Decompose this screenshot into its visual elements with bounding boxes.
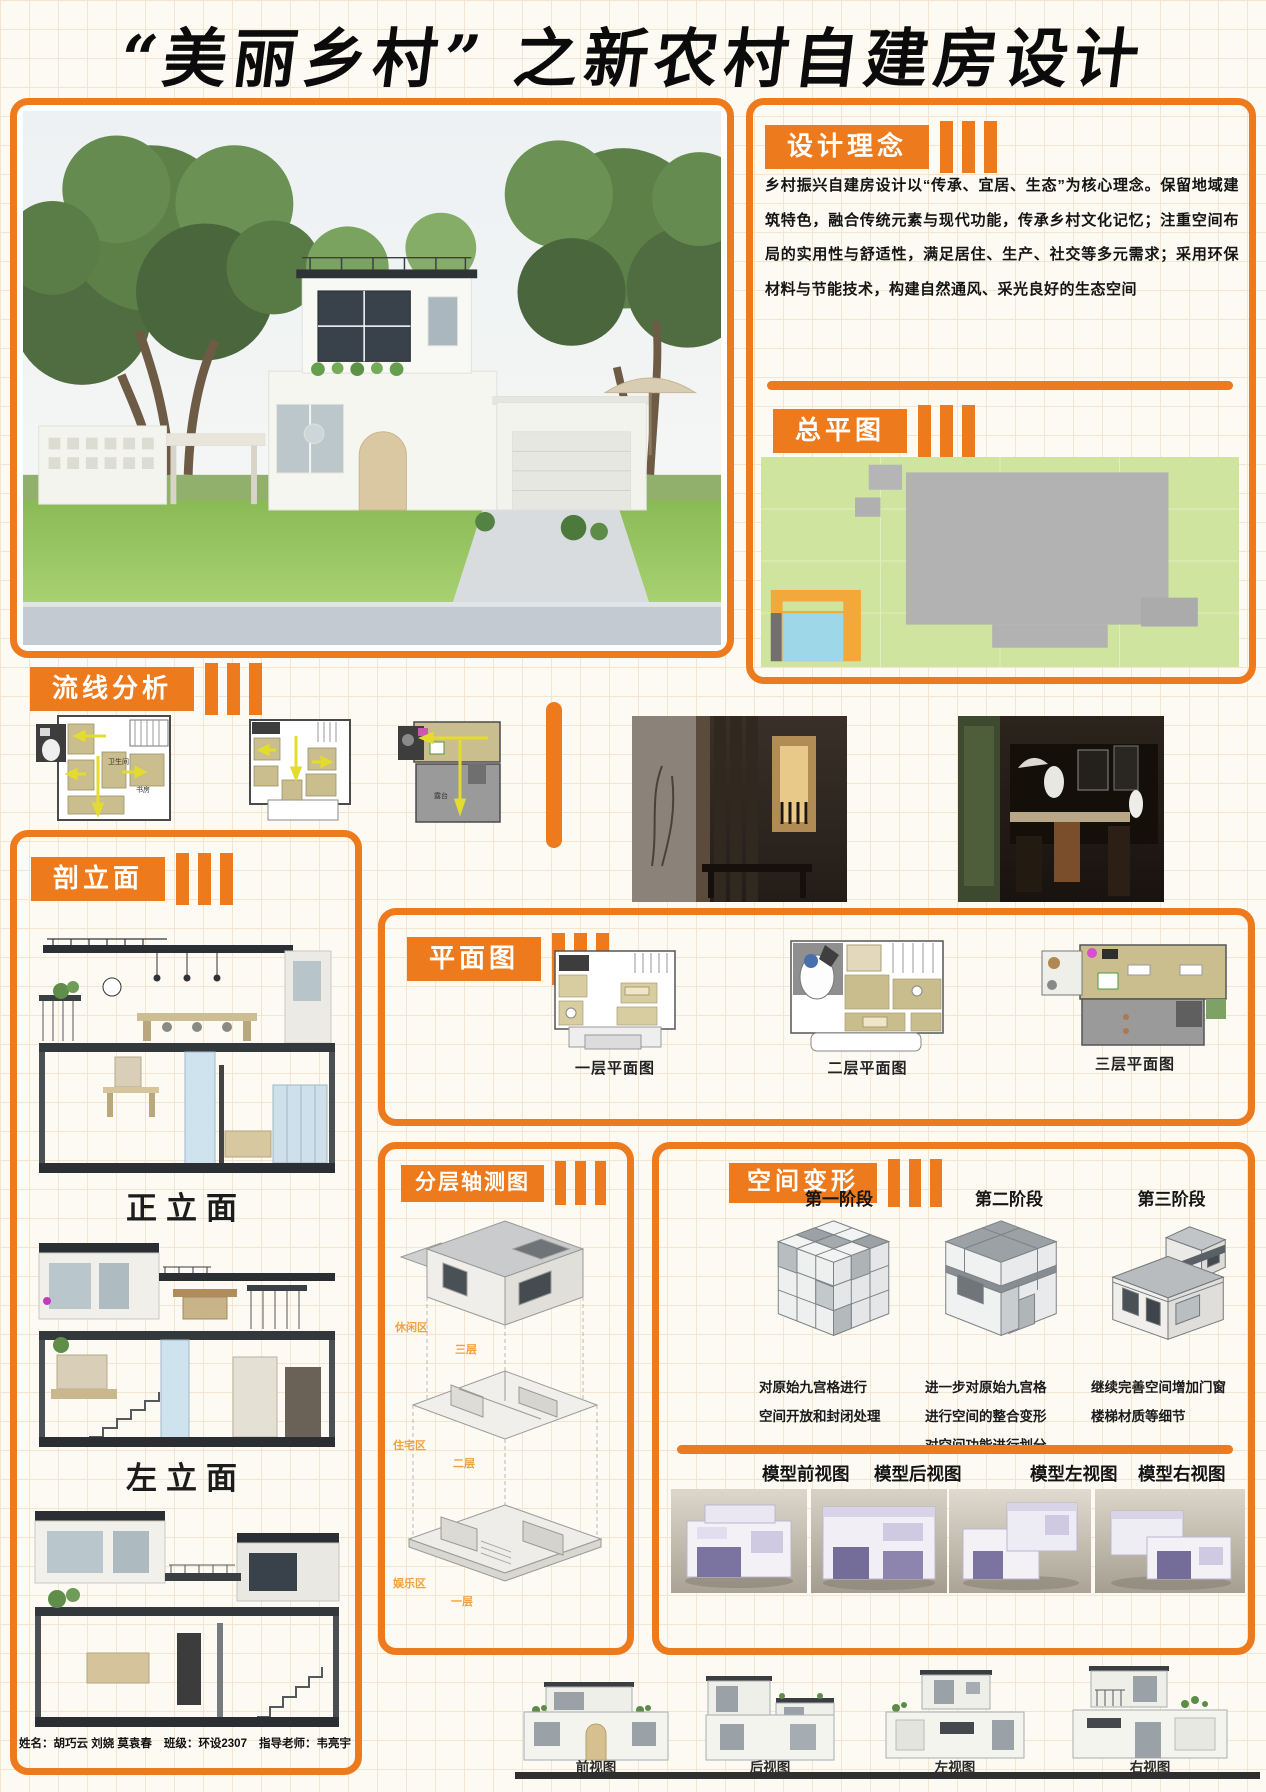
circulation-plan-2 bbox=[246, 718, 368, 824]
header-accent-bars bbox=[940, 121, 997, 173]
sections-header-title: 剖立面 bbox=[31, 857, 165, 901]
poster-board: “美丽乡村” 之新农村自建房设计 bbox=[0, 0, 1266, 1792]
bottom-elevation-right bbox=[1065, 1664, 1235, 1764]
concept-siteplan-panel: 设计理念 乡村振兴自建房设计以“传承、宜居、生态”为核心理念。保留地域建筑特色，… bbox=[746, 98, 1256, 684]
stage3-house-image bbox=[1099, 1213, 1239, 1361]
header-accent-bars bbox=[918, 405, 975, 457]
front-elevation-label: 正立面 bbox=[17, 1183, 355, 1228]
poster-title: “美丽乡村” 之新农村自建房设计 bbox=[0, 8, 1266, 100]
floorplan-level3-image bbox=[1040, 943, 1230, 1047]
header-accent-bars bbox=[555, 1161, 606, 1205]
floorplan-level2-image bbox=[765, 939, 970, 1053]
circulation-header: 流线分析 bbox=[30, 663, 262, 715]
model-left-label: 模型左视图 bbox=[1030, 1461, 1118, 1486]
credits-line: 姓名：胡巧云 刘娆 莫袁春班级：环设2307指导老师：韦亮宇 bbox=[19, 1735, 363, 1751]
siteplan-header-title: 总平图 bbox=[773, 409, 907, 453]
interior-photo-hallway bbox=[632, 716, 847, 902]
stage1-description: 对原始九宫格进行 空间开放和封闭处理 bbox=[759, 1373, 881, 1431]
interior-photo-diningroom bbox=[958, 716, 1164, 902]
header-accent-bars bbox=[205, 663, 262, 715]
vertical-accent-bar bbox=[546, 702, 562, 848]
concept-header: 设计理念 bbox=[765, 121, 997, 173]
axon-floor-label: 二层 bbox=[453, 1457, 475, 1470]
circulation-plan-3: 露台 bbox=[396, 720, 502, 826]
model-back-photo bbox=[811, 1489, 947, 1593]
axonometric-panel: 分层轴测图 bbox=[378, 1142, 634, 1655]
model-front-label: 模型前视图 bbox=[762, 1461, 850, 1486]
floorplans-header-title: 平面图 bbox=[407, 937, 541, 981]
credit-class: 班级：环设2307 bbox=[164, 1738, 247, 1750]
model-front-photo bbox=[671, 1489, 807, 1593]
circulation-header-title: 流线分析 bbox=[30, 667, 194, 711]
axon-floor-label: 三层 bbox=[455, 1343, 477, 1356]
stage1-label: 第一阶段 bbox=[754, 1185, 924, 1210]
section-drawing-bottom bbox=[27, 1503, 347, 1731]
section-divider bbox=[767, 381, 1233, 390]
model-right-label: 模型右视图 bbox=[1138, 1461, 1226, 1486]
floorplans-panel: 平面图 bbox=[378, 908, 1255, 1126]
plan-room-label: 卫生间 bbox=[108, 757, 129, 766]
hero-render-panel bbox=[10, 98, 734, 658]
stage1-cube-image bbox=[769, 1213, 899, 1361]
axon-zone-label: 娱乐区 bbox=[393, 1576, 426, 1590]
floorplan-level3-label: 三层平面图 bbox=[1040, 1053, 1230, 1074]
left-elevation-label: 左立面 bbox=[17, 1453, 355, 1498]
credit-names: 姓名：胡巧云 刘娆 莫袁春 bbox=[19, 1738, 152, 1750]
concept-body-text: 乡村振兴自建房设计以“传承、宜居、生态”为核心理念。保留地域建筑特色，融合传统元… bbox=[765, 169, 1239, 307]
header-accent-bars bbox=[176, 853, 233, 905]
sections-header: 剖立面 bbox=[31, 853, 233, 905]
stage3-desc-line: 楼梯材质等细节 bbox=[1091, 1402, 1226, 1431]
site-plan-image bbox=[761, 457, 1239, 667]
model-back-label: 模型后视图 bbox=[874, 1461, 962, 1486]
axonometric-header-title: 分层轴测图 bbox=[401, 1165, 544, 1202]
bottom-elevation-left bbox=[880, 1668, 1030, 1764]
stage2-desc-line: 进行空间的整合变形 bbox=[925, 1402, 1047, 1431]
bottom-baseline-bar bbox=[515, 1772, 1260, 1779]
bottom-elevation-front bbox=[520, 1678, 672, 1764]
siteplan-header: 总平图 bbox=[773, 405, 975, 457]
stage3-description: 继续完善空间增加门窗 楼梯材质等细节 bbox=[1091, 1373, 1226, 1431]
axon-zone-label: 休闲区 bbox=[394, 1320, 428, 1334]
stage3-desc-line: 继续完善空间增加门窗 bbox=[1091, 1373, 1226, 1402]
exploded-axonometric-image: 休闲区 三层 住宅区 二层 娱乐区 一层 bbox=[391, 1211, 619, 1639]
axon-floor-label: 一层 bbox=[451, 1595, 473, 1608]
hero-render-image bbox=[23, 111, 721, 645]
stage2-desc-line: 进一步对原始九宫格 bbox=[925, 1373, 1047, 1402]
floorplan-level2-label: 二层平面图 bbox=[765, 1057, 970, 1078]
section-divider bbox=[677, 1445, 1233, 1454]
stage2-label: 第二阶段 bbox=[924, 1185, 1094, 1210]
section-drawing-front bbox=[37, 935, 337, 1175]
bottom-elevation-back bbox=[700, 1672, 840, 1764]
circulation-plan-1: 卫生间 书房 bbox=[34, 714, 174, 824]
floorplan-level1-label: 一层平面图 bbox=[525, 1057, 705, 1078]
stage1-desc-line: 空间开放和封闭处理 bbox=[759, 1402, 881, 1431]
model-right-photo bbox=[1095, 1489, 1245, 1593]
stage1-desc-line: 对原始九宫格进行 bbox=[759, 1373, 881, 1402]
section-drawing-left bbox=[33, 1237, 341, 1449]
axonometric-header: 分层轴测图 bbox=[401, 1161, 606, 1205]
sections-panel: 剖立面 bbox=[10, 830, 362, 1775]
transformation-panel: 空间变形 第一阶段 第二阶段 第三阶段 bbox=[652, 1142, 1255, 1655]
plan-room-label: 书房 bbox=[136, 785, 150, 794]
axon-zone-label: 住宅区 bbox=[393, 1438, 426, 1452]
concept-header-title: 设计理念 bbox=[765, 125, 929, 169]
stage3-label: 第三阶段 bbox=[1094, 1185, 1249, 1210]
model-left-photo bbox=[949, 1489, 1091, 1593]
floorplan-level1-image bbox=[525, 949, 705, 1051]
credit-teacher: 指导老师：韦亮宇 bbox=[259, 1738, 351, 1750]
plan-room-label: 露台 bbox=[434, 791, 448, 800]
stage2-cube-image bbox=[934, 1213, 1069, 1361]
